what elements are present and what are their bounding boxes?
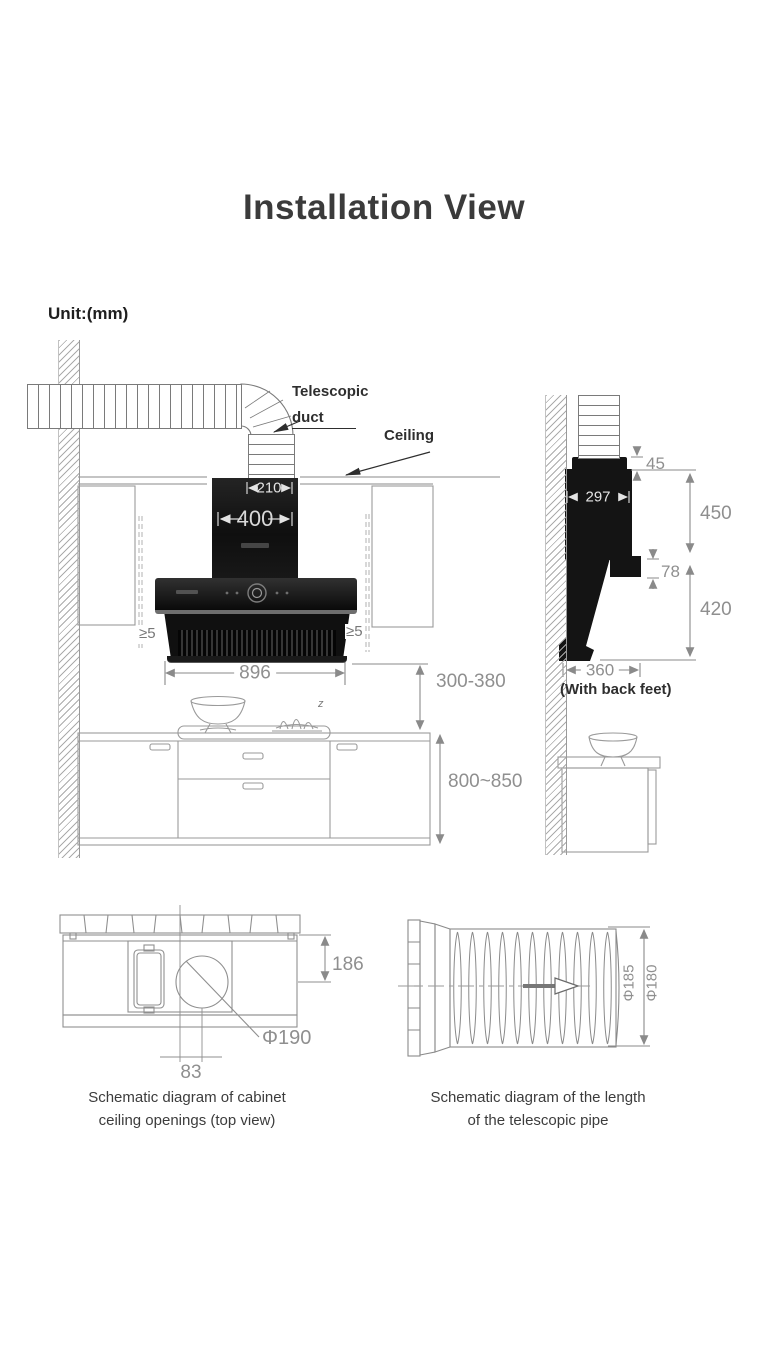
dim-pipe-inner-diameter: Φ180 xyxy=(645,965,660,1002)
dim-right-clearance: ≥5 xyxy=(345,624,364,639)
horizontal-duct xyxy=(27,384,242,429)
front-wall-upper xyxy=(58,340,80,384)
pipe-caption-line2: of the telescopic pipe xyxy=(398,1112,678,1130)
duct-label: duct xyxy=(292,410,356,429)
dim-hood-to-counter: 300-380 xyxy=(436,672,506,691)
unit-label: Unit:(mm) xyxy=(48,305,128,322)
topview-caption-line2: ceiling openings (top view) xyxy=(40,1112,334,1130)
topview-caption-line1: Schematic diagram of cabinet xyxy=(40,1089,334,1107)
dim-chimney-width: 400 xyxy=(237,508,274,530)
telescopic-label: Telescopic xyxy=(292,384,368,399)
installation-diagram: Installation View Unit:(mm) Telescopic d… xyxy=(0,0,768,1361)
hood-grille xyxy=(178,630,336,657)
side-wall xyxy=(545,395,567,855)
dim-left-clearance: ≥5 xyxy=(138,626,157,641)
dim-duct-outlet-width: 210 xyxy=(256,481,281,496)
dim-hole-diameter: Φ190 xyxy=(262,1028,311,1048)
cooktop-mark: z xyxy=(318,699,324,710)
base-cabinet xyxy=(78,733,430,845)
dim-upper-height: 450 xyxy=(700,504,732,523)
dim-hood-depth: 297 xyxy=(585,490,610,505)
vertical-duct-front xyxy=(248,434,295,482)
dim-bracket-height: 78 xyxy=(661,563,680,580)
dim-base-depth: 360 xyxy=(581,662,619,679)
dim-counter-height: 800~850 xyxy=(448,772,523,791)
front-dimensions xyxy=(165,661,440,843)
vertical-duct-side xyxy=(578,395,620,459)
cooktop-sketch xyxy=(178,697,330,740)
dim-collar-height: 45 xyxy=(646,455,665,472)
dim-opening-depth: 186 xyxy=(332,955,364,974)
back-feet-note: (With back feet) xyxy=(560,682,672,697)
dim-hood-width: 896 xyxy=(234,664,276,683)
dim-lower-height: 420 xyxy=(700,600,732,619)
page-title: Installation View xyxy=(0,188,768,228)
pipe-caption-line1: Schematic diagram of the length xyxy=(398,1089,678,1107)
front-wall-main xyxy=(58,429,80,858)
dim-hole-offset: 83 xyxy=(180,1063,201,1082)
duct-elbow xyxy=(241,384,293,436)
hood-top-bar xyxy=(155,578,357,614)
pipe-sketch xyxy=(398,920,650,1056)
dim-pipe-outer-diameter: Φ185 xyxy=(622,965,637,1002)
side-cabinet-sketch xyxy=(558,733,660,852)
ceiling-label: Ceiling xyxy=(384,428,434,443)
